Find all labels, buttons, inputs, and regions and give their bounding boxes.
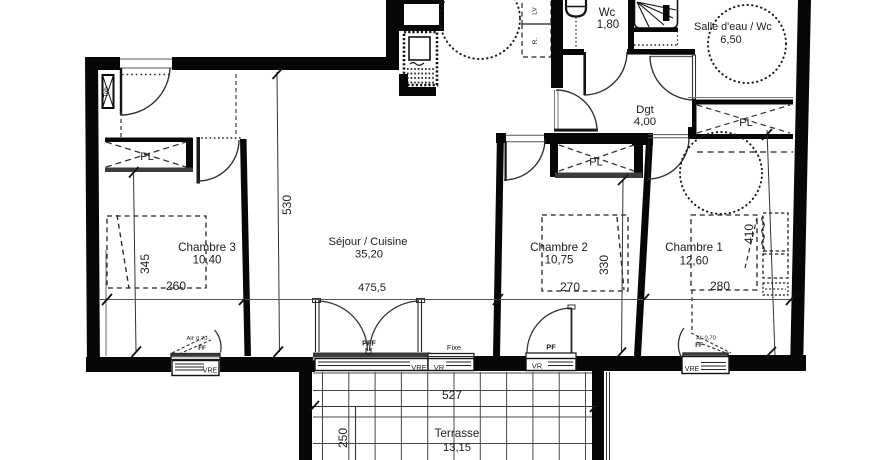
svg-text:LV: LV: [532, 7, 539, 15]
svg-text:Chambre 2: Chambre 2: [530, 241, 588, 254]
svg-text:35,20: 35,20: [355, 249, 383, 261]
svg-text:PL: PL: [140, 151, 153, 163]
svg-text:PF: PF: [546, 343, 556, 352]
svg-text:Salle d'eau / Wc: Salle d'eau / Wc: [694, 21, 772, 33]
svg-text:12,60: 12,60: [680, 256, 709, 268]
svg-text:Wc: Wc: [599, 7, 616, 19]
svg-text:1,80: 1,80: [597, 19, 619, 31]
svg-text:527: 527: [442, 388, 462, 402]
svg-text:VRE: VRE: [411, 363, 426, 372]
svg-text:10,40: 10,40: [193, 255, 222, 267]
svg-text:VR: VR: [434, 363, 445, 372]
svg-text:330: 330: [597, 255, 611, 275]
svg-text:250: 250: [336, 428, 350, 448]
svg-text:Tab.: Tab.: [103, 85, 110, 97]
svg-text:Dgt: Dgt: [636, 104, 655, 116]
svg-text:260: 260: [166, 279, 186, 293]
svg-text:270: 270: [560, 280, 580, 294]
svg-text:FF: FF: [198, 345, 206, 352]
svg-text:Fixe: Fixe: [447, 343, 461, 352]
svg-text:4,00: 4,00: [634, 116, 656, 128]
svg-text:VR: VR: [532, 362, 543, 371]
svg-text:Séjour / Cuisine: Séjour / Cuisine: [329, 236, 408, 248]
svg-text:410: 410: [742, 224, 756, 244]
svg-text:475,5: 475,5: [358, 282, 386, 294]
svg-text:345: 345: [138, 254, 152, 274]
svg-text:All: 0,70: All: 0,70: [187, 336, 208, 342]
svg-text:13,15: 13,15: [443, 442, 471, 454]
svg-text:280: 280: [710, 279, 730, 293]
svg-text:PL: PL: [739, 117, 752, 129]
svg-text:530: 530: [280, 195, 294, 215]
svg-text:6,50: 6,50: [720, 34, 741, 46]
svg-text:Chambre 1: Chambre 1: [665, 241, 723, 254]
svg-text:VRE: VRE: [203, 368, 218, 375]
svg-text:R.: R.: [532, 38, 539, 45]
svg-text:10,75: 10,75: [545, 255, 574, 267]
svg-text:VRE: VRE: [685, 366, 700, 373]
svg-text:PFF: PFF: [362, 339, 376, 348]
svg-text:Al: 0,70: Al: 0,70: [696, 336, 716, 342]
svg-text:FF: FF: [695, 342, 703, 349]
svg-text:Terrasse: Terrasse: [435, 427, 480, 440]
svg-text:Chambre 3: Chambre 3: [178, 241, 236, 254]
svg-text:PL: PL: [589, 157, 602, 169]
